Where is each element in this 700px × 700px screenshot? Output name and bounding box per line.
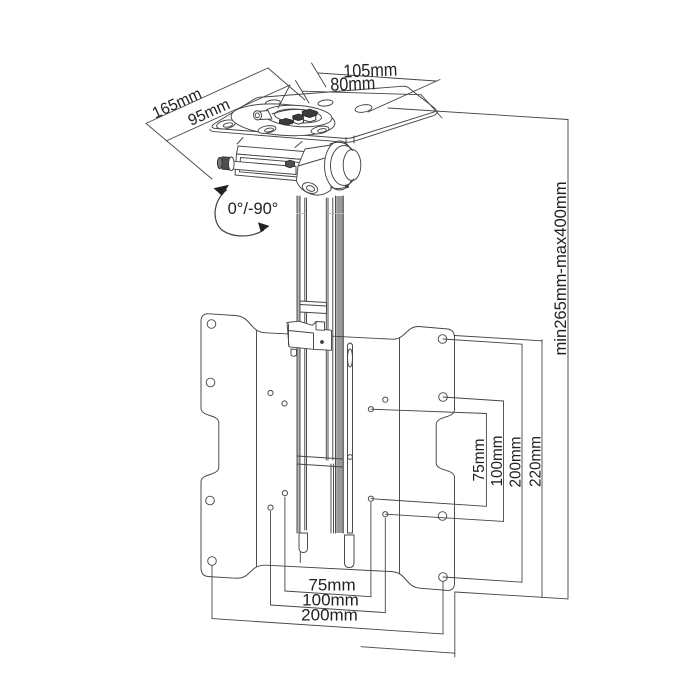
- svg-text:75mm: 75mm: [471, 439, 488, 482]
- svg-text:80mm: 80mm: [330, 72, 376, 95]
- svg-text:0°/-90°: 0°/-90°: [228, 200, 279, 218]
- svg-text:200mm: 200mm: [508, 437, 525, 488]
- svg-text:100mm: 100mm: [489, 436, 506, 487]
- svg-text:min265mm-max400mm: min265mm-max400mm: [552, 182, 570, 356]
- svg-text:220mm: 220mm: [528, 436, 545, 487]
- svg-text:200mm: 200mm: [301, 606, 358, 625]
